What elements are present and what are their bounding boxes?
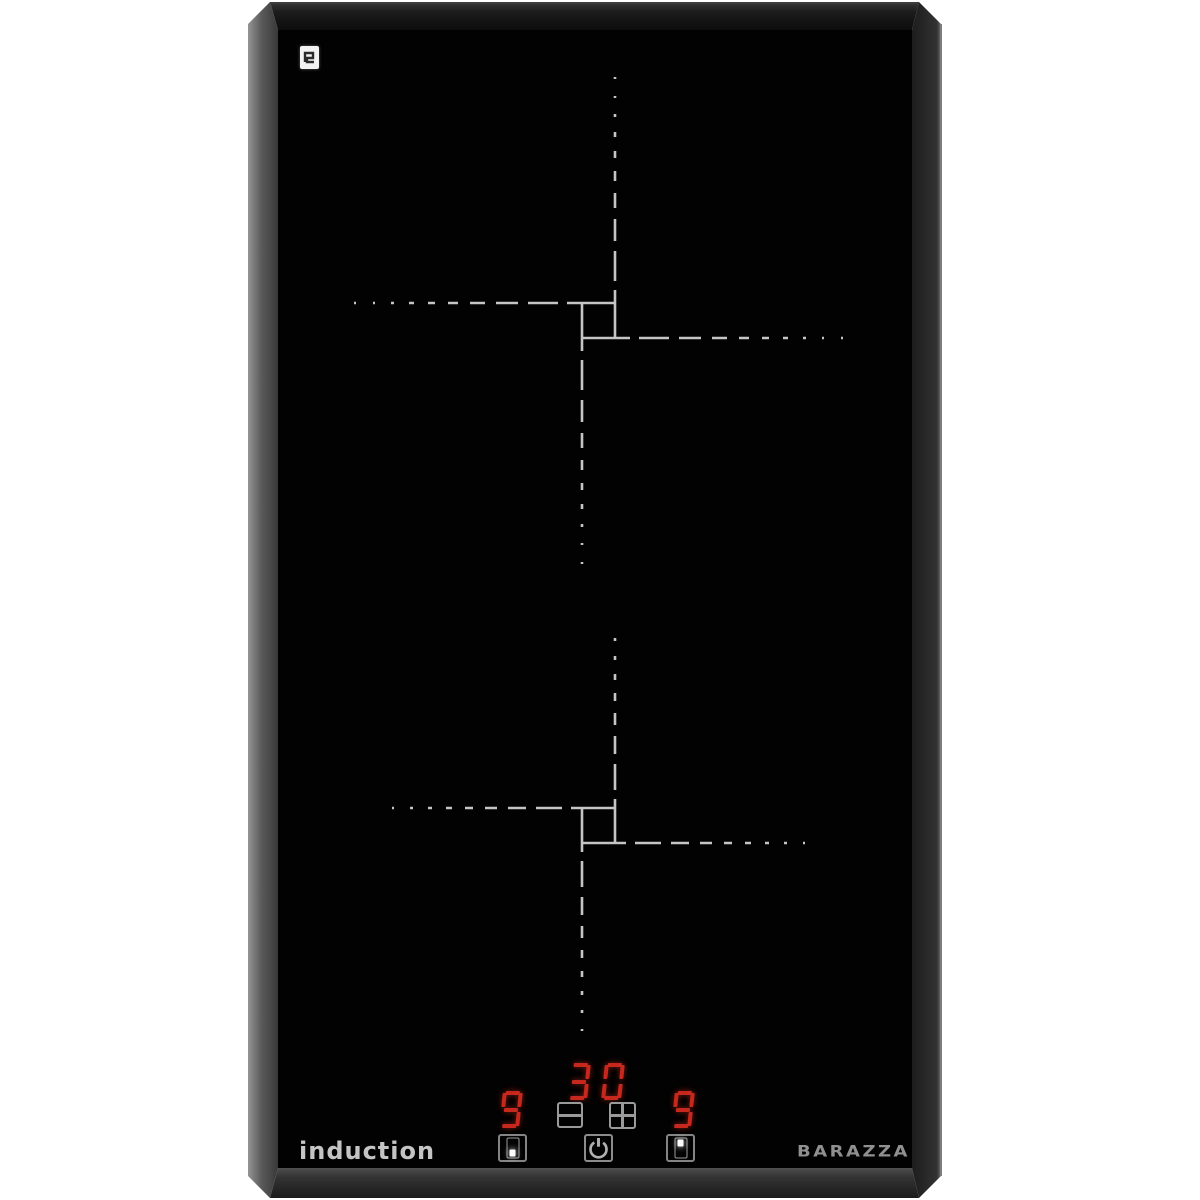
induction-label: induction	[299, 1137, 435, 1165]
minus-icon	[558, 1114, 582, 1117]
zone-select-front-icon	[506, 1138, 519, 1159]
plus-button[interactable]	[609, 1102, 636, 1129]
approval-mark-icon	[300, 46, 319, 69]
right-power-display	[673, 1091, 693, 1128]
product-photo: induction BARAZZA	[0, 0, 1200, 1200]
timer-display	[569, 1063, 623, 1100]
zone-select-rear-icon	[674, 1138, 687, 1159]
cooktop-body	[0, 0, 1200, 1200]
brand-logo: BARAZZA	[790, 1142, 910, 1161]
power-button[interactable]	[584, 1134, 613, 1162]
left-power-display	[501, 1091, 521, 1128]
power-icon	[586, 1136, 611, 1160]
right-zone-select-button[interactable]	[666, 1134, 695, 1162]
minus-button[interactable]	[557, 1102, 583, 1128]
glass-surface	[278, 30, 912, 1168]
left-zone-select-button[interactable]	[498, 1134, 527, 1162]
